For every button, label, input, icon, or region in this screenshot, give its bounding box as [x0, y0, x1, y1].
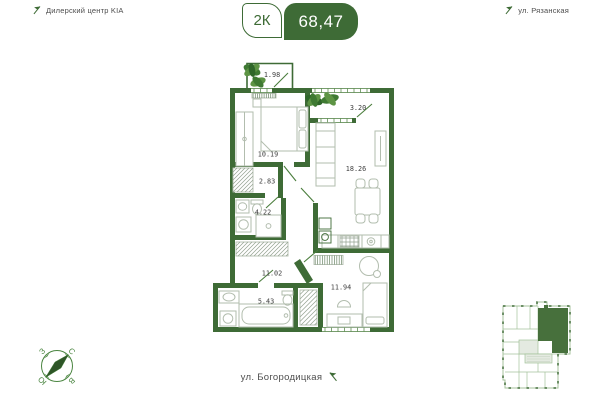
chair-symbol	[356, 214, 365, 223]
room-label-hallway: 11.02	[262, 270, 282, 278]
mini-corridor	[519, 340, 538, 354]
compass-rose: С В Ю З	[36, 346, 77, 387]
compass-needle	[46, 355, 69, 378]
nightstand-symbol	[253, 99, 261, 107]
room-label-balcony-top: 1.98	[264, 71, 280, 79]
dining-table-symbol	[355, 188, 380, 215]
chair-symbol	[356, 179, 365, 188]
bathroom-fixtures	[219, 291, 293, 327]
window-living-balcony	[318, 118, 352, 123]
window-balcony-glazing	[312, 88, 370, 93]
room-label-bathroom-small: 4.22	[255, 209, 271, 217]
building-key-plan	[503, 302, 570, 388]
room-label-closet: 2.83	[259, 178, 275, 186]
desk-chair-symbol	[338, 301, 351, 308]
window-bedroom	[251, 88, 272, 93]
sofa-symbol	[316, 123, 335, 186]
room-furniture	[327, 257, 387, 328]
room-label-balcony-right: 3.20	[350, 104, 366, 112]
window-room	[322, 327, 370, 332]
chair-symbol	[369, 214, 378, 223]
pillow-symbol	[299, 110, 306, 128]
room-label-room: 11.94	[331, 284, 351, 292]
laptop-symbol	[338, 317, 350, 324]
closet-shelves-symbol	[233, 168, 253, 192]
room-label-bedroom: 10.19	[258, 151, 278, 159]
pillow-symbol	[366, 317, 384, 324]
pillow-symbol	[299, 130, 306, 148]
floor-plan: 1.98 3.20 10.19 18.26 2.83 4.22 11.02 5.…	[0, 0, 600, 400]
room-label-living: 18.26	[346, 165, 366, 173]
room-label-bathroom: 5.43	[258, 298, 274, 306]
radiator-symbol	[314, 256, 343, 265]
shower-symbol	[256, 215, 281, 237]
chair-symbol	[369, 179, 378, 188]
bathroom-small-fixtures	[236, 200, 281, 237]
floorplan-page: { "header": { "left_landmark": "Дилерски…	[0, 0, 600, 400]
